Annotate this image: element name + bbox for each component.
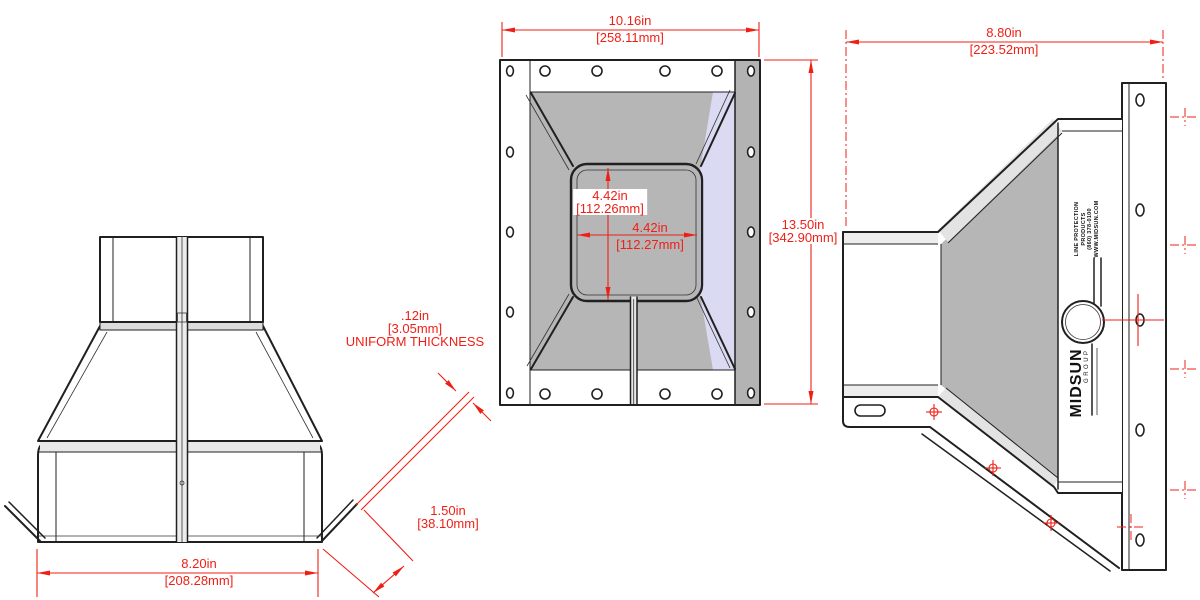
center-split-seam (177, 237, 188, 542)
face-text-line3: (860) 378-0100 (1087, 200, 1094, 257)
dim-front-width-in: 10.16in (596, 14, 664, 27)
left-view-drawing (5, 237, 357, 542)
dim-front-height-label: 13.50in [342.90mm] (766, 218, 841, 244)
mounting-flange-plate (1122, 83, 1166, 570)
dim-base-width-in: 8.20in (165, 557, 234, 570)
side-body (843, 119, 1122, 493)
dim-base-width-label: 8.20in [208.28mm] (165, 557, 234, 587)
thickness-note-label: .12in [3.05mm] UNIFORM THICKNESS (346, 309, 484, 348)
dim-front-width-label: 10.16in [258.11mm] (596, 14, 664, 44)
thickness-leader-lines (356, 373, 491, 510)
dim-side-depth-in: 8.80in (970, 26, 1039, 39)
face-text-block: LINE PROTECTION PRODUCTS (860) 378-0100 … (1074, 200, 1100, 257)
dim-base-width-mm: [208.28mm] (165, 574, 234, 587)
technical-drawing-canvas: .k2{stroke:#202020;stroke-width:2;fill:n… (0, 0, 1200, 600)
bolt-holes-top (540, 66, 722, 76)
dim-front-width-mm: [258.11mm] (596, 31, 664, 44)
outer-center-marks (1170, 108, 1199, 499)
dim-inner-height-mm: [112.26mm] (573, 202, 647, 215)
dim-foot-width-label: 1.50in [38.10mm] (417, 504, 478, 530)
dim-foot-width-mm: [38.10mm] (417, 517, 478, 530)
dim-front-height-mm: [342.90mm] (766, 231, 841, 244)
side-view-drawing (843, 83, 1199, 572)
dim-inner-width-mm: [112.27mm] (616, 238, 684, 251)
front-split-seam (631, 297, 638, 404)
dim-inner-width-label: 4.42in [112.27mm] (616, 221, 684, 251)
midsun-logo-secondary: GROUP (1084, 348, 1091, 417)
drawing-linework: .k2{stroke:#202020;stroke-width:2;fill:n… (0, 0, 1200, 600)
dim-inner-height-label: 4.42in [112.26mm] (573, 189, 647, 215)
midsun-logo: MIDSUN GROUP (1069, 348, 1091, 417)
midsun-logo-primary: MIDSUN (1069, 348, 1084, 417)
dim-inner-width-in: 4.42in (616, 221, 684, 234)
thickness-note: UNIFORM THICKNESS (346, 335, 484, 348)
dim-side-depth-mm: [223.52mm] (970, 43, 1039, 56)
dim-side-depth-label: 8.80in [223.52mm] (970, 26, 1039, 56)
dim-foot-width-lines (323, 510, 413, 597)
face-text-line4: WWW.MIDSUN.COM (1094, 200, 1101, 257)
center-mark (926, 404, 942, 420)
face-text-line1: LINE PROTECTION (1074, 200, 1081, 257)
